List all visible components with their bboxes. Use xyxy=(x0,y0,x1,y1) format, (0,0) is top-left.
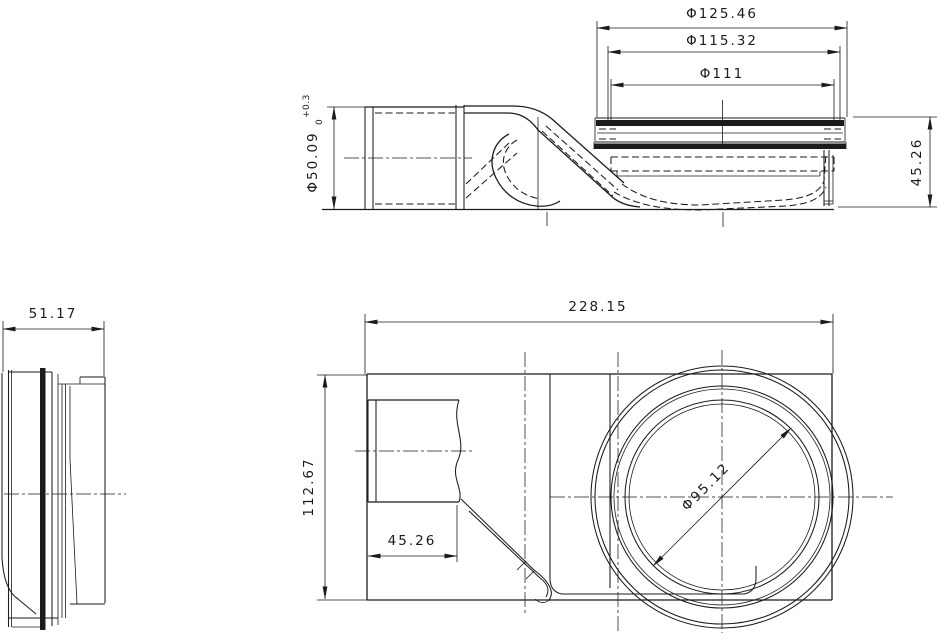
dim-pipe-dia: Φ50.09 +0.3 0 xyxy=(302,94,366,209)
dim-flange-outer-dia: Φ125.46 xyxy=(597,6,847,117)
dim-label: 51.17 xyxy=(29,306,78,322)
dim-label: Φ95.12 xyxy=(679,460,734,515)
dim-label: 45.26 xyxy=(909,138,925,187)
dim-label: Φ50.09 xyxy=(305,131,321,192)
dim-overall-length: 228.15 xyxy=(365,299,833,374)
dim-label: 112.67 xyxy=(301,457,317,516)
dim-label: Φ125.46 xyxy=(686,6,758,22)
dim-tol-lower: 0 xyxy=(315,119,325,125)
side-elevation-view: Φ125.46 Φ115.32 Φ111 Φ50.09 +0.3 0 xyxy=(302,6,937,227)
plan-body-outline xyxy=(355,352,832,632)
dim-flange-height: 45.26 xyxy=(838,117,937,207)
drain-circles xyxy=(550,350,893,633)
page: Φ125.46 Φ115.32 Φ111 Φ50.09 +0.3 0 xyxy=(0,0,940,634)
dim-tol-upper: +0.3 xyxy=(302,94,312,118)
dim-label: Φ111 xyxy=(700,66,744,82)
dim-depth: 51.17 xyxy=(3,306,104,376)
dim-label: 45.26 xyxy=(388,533,437,549)
flange-assembly xyxy=(594,118,846,206)
dim-overall-width: 112.67 xyxy=(301,375,367,600)
plan-view: 228.15 112.67 45.26 xyxy=(301,299,893,633)
trap-body-outline xyxy=(464,100,826,227)
end-view-outline xyxy=(2,368,126,630)
end-view: 51.17 xyxy=(2,306,126,630)
dim-stub-length: 45.26 xyxy=(368,505,457,562)
dim-label: Φ115.32 xyxy=(686,33,758,49)
technical-drawing-canvas: Φ125.46 Φ115.32 Φ111 Φ50.09 +0.3 0 xyxy=(0,0,940,634)
dim-label: 228.15 xyxy=(568,299,627,315)
support-rib xyxy=(461,499,551,603)
